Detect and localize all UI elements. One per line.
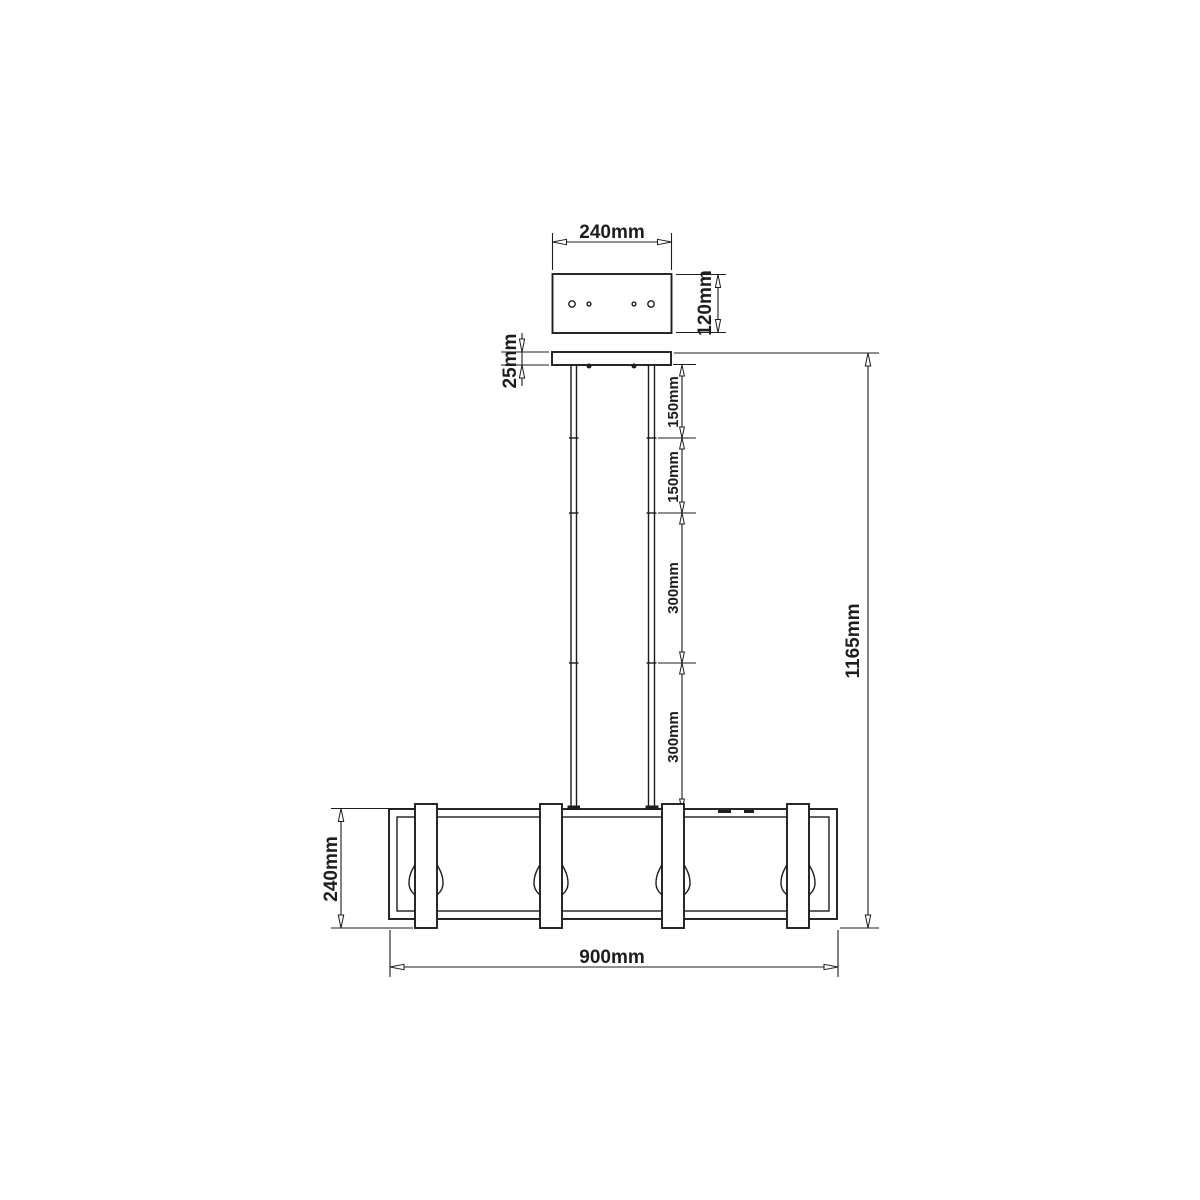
dim-canopy-width: 240mm bbox=[553, 222, 672, 270]
rod-foot-left bbox=[568, 806, 581, 811]
canopy-hole-large-right bbox=[648, 301, 654, 307]
dim-label-plate-thickness: 25mm bbox=[500, 334, 521, 389]
strap bbox=[415, 804, 437, 928]
dim-label-segment-4: 300mm bbox=[665, 711, 682, 763]
plate-screw-left bbox=[587, 364, 592, 369]
arrowhead-up bbox=[680, 513, 685, 524]
canopy-hole-small-left bbox=[587, 302, 591, 306]
arrowhead-left bbox=[390, 964, 404, 969]
ceiling-plate-side-view bbox=[552, 352, 671, 369]
arrowhead-down bbox=[338, 915, 343, 928]
arrowhead-down bbox=[865, 915, 870, 928]
dim-plate-thickness: 25mm bbox=[500, 333, 549, 388]
frame-top-connector bbox=[718, 810, 731, 813]
arrowhead-up bbox=[715, 275, 720, 288]
arrowhead-down bbox=[715, 320, 720, 333]
dim-label-frame-height: 240mm bbox=[321, 836, 342, 902]
strap bbox=[540, 804, 562, 928]
strap bbox=[662, 804, 684, 928]
dim-frame-width: 900mm bbox=[390, 930, 838, 977]
dim-rod-segments: 150mm 150mm 300mm 300mm bbox=[658, 365, 696, 811]
suspension-rods bbox=[569, 365, 657, 809]
plate-screw-right bbox=[632, 364, 637, 369]
strap bbox=[787, 804, 809, 928]
canopy-hole-small-right bbox=[632, 302, 636, 306]
arrowhead-right bbox=[824, 964, 838, 969]
dim-label-segment-2: 150mm bbox=[665, 451, 682, 503]
rod-foot-right bbox=[646, 806, 659, 811]
dim-label-segment-1: 150mm bbox=[665, 376, 682, 428]
arrowhead-up bbox=[865, 353, 870, 366]
dim-label-canopy-width: 240mm bbox=[579, 222, 645, 243]
arrowhead-down bbox=[680, 652, 685, 663]
arrowhead-up bbox=[680, 365, 685, 376]
drawing-canvas: 240mm 120mm 25mm bbox=[0, 0, 1200, 1200]
fixture-frame bbox=[389, 806, 837, 920]
frame-top-connector bbox=[744, 810, 754, 813]
canopy-hole-large-left bbox=[569, 301, 575, 307]
dim-label-frame-width: 900mm bbox=[579, 947, 645, 968]
ceiling-plate bbox=[552, 352, 671, 365]
frame-outer bbox=[389, 809, 837, 919]
arrowhead-right bbox=[658, 239, 672, 244]
pendant-light-dimension-drawing: 240mm 120mm 25mm bbox=[0, 0, 1200, 1200]
dim-canopy-height: 120mm bbox=[676, 270, 726, 336]
arrowhead-up bbox=[680, 663, 685, 674]
dim-label-segment-3: 300mm bbox=[665, 562, 682, 614]
dim-label-canopy-height: 120mm bbox=[695, 270, 716, 336]
canopy-plan-view bbox=[553, 274, 672, 333]
arrowhead-up bbox=[680, 438, 685, 449]
arrowhead-left bbox=[553, 239, 567, 244]
dim-label-overall-height: 1165mm bbox=[843, 603, 864, 678]
arrowhead-up bbox=[338, 809, 343, 822]
